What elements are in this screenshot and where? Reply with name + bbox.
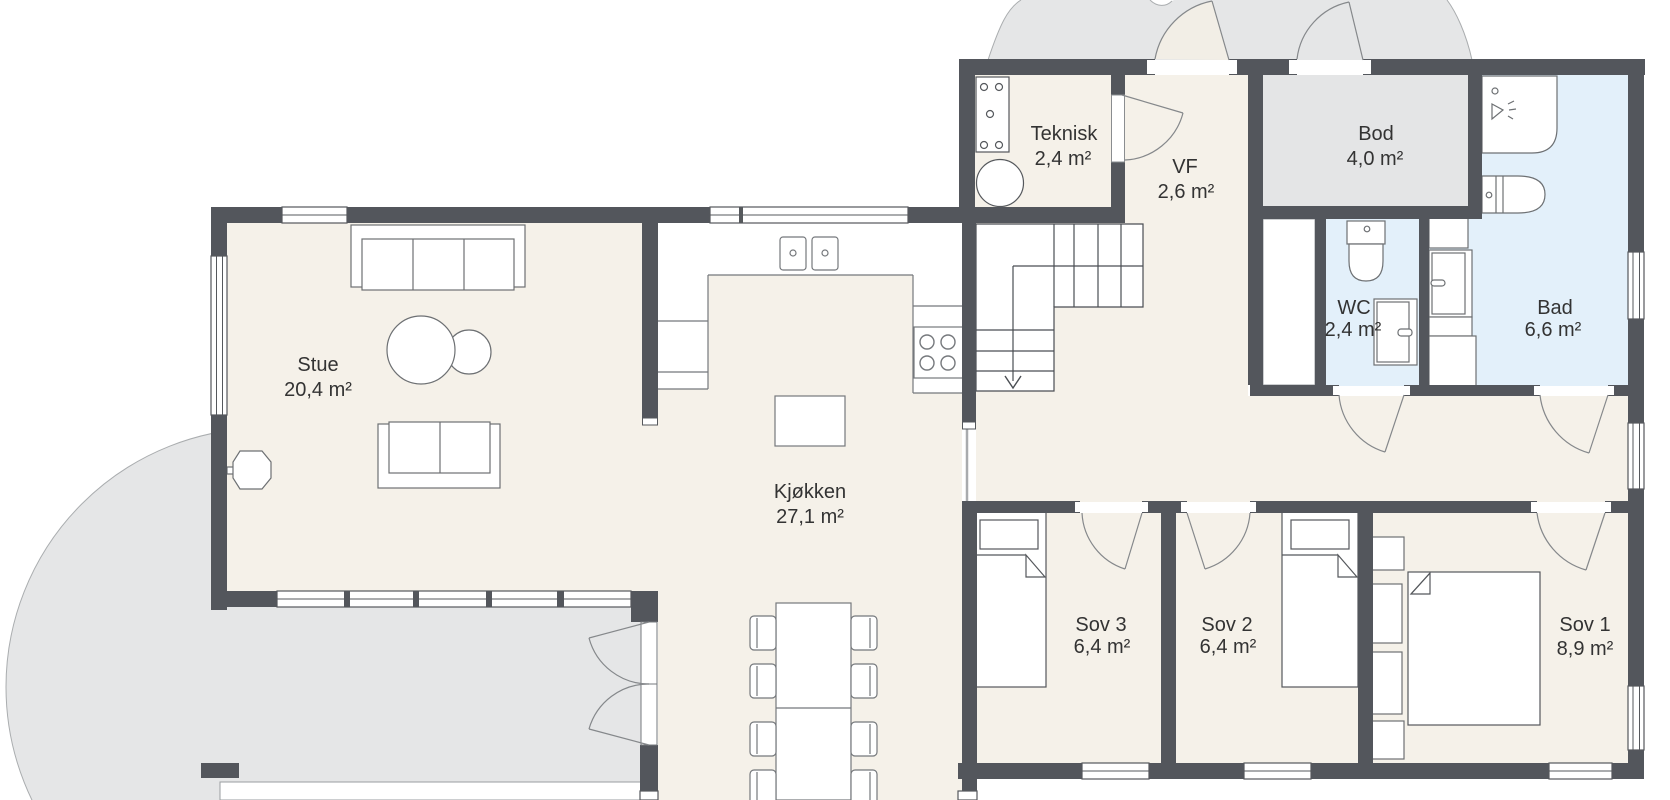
svg-text:27,1 m²: 27,1 m² [776, 506, 844, 528]
svg-text:6,6 m²: 6,6 m² [1525, 319, 1582, 341]
svg-text:WC: WC [1337, 297, 1370, 319]
svg-text:Stue: Stue [297, 354, 338, 376]
svg-text:4,0 m²: 4,0 m² [1347, 148, 1404, 170]
svg-text:Bod: Bod [1358, 123, 1394, 145]
svg-text:Kjøkken: Kjøkken [774, 481, 846, 503]
svg-text:Bad: Bad [1537, 297, 1573, 319]
svg-text:2,4 m²: 2,4 m² [1035, 148, 1092, 170]
svg-text:Teknisk: Teknisk [1031, 123, 1099, 145]
svg-text:2,6 m²: 2,6 m² [1158, 181, 1215, 203]
svg-text:6,4 m²: 6,4 m² [1074, 636, 1131, 658]
svg-text:VF: VF [1172, 156, 1198, 178]
svg-text:20,4 m²: 20,4 m² [284, 379, 352, 401]
svg-text:Sov 2: Sov 2 [1201, 614, 1252, 636]
svg-text:Sov 3: Sov 3 [1075, 614, 1126, 636]
svg-text:6,4 m²: 6,4 m² [1200, 636, 1257, 658]
svg-text:Sov 1: Sov 1 [1559, 614, 1610, 636]
svg-text:8,9 m²: 8,9 m² [1557, 638, 1614, 660]
svg-text:2,4 m²: 2,4 m² [1325, 319, 1382, 341]
